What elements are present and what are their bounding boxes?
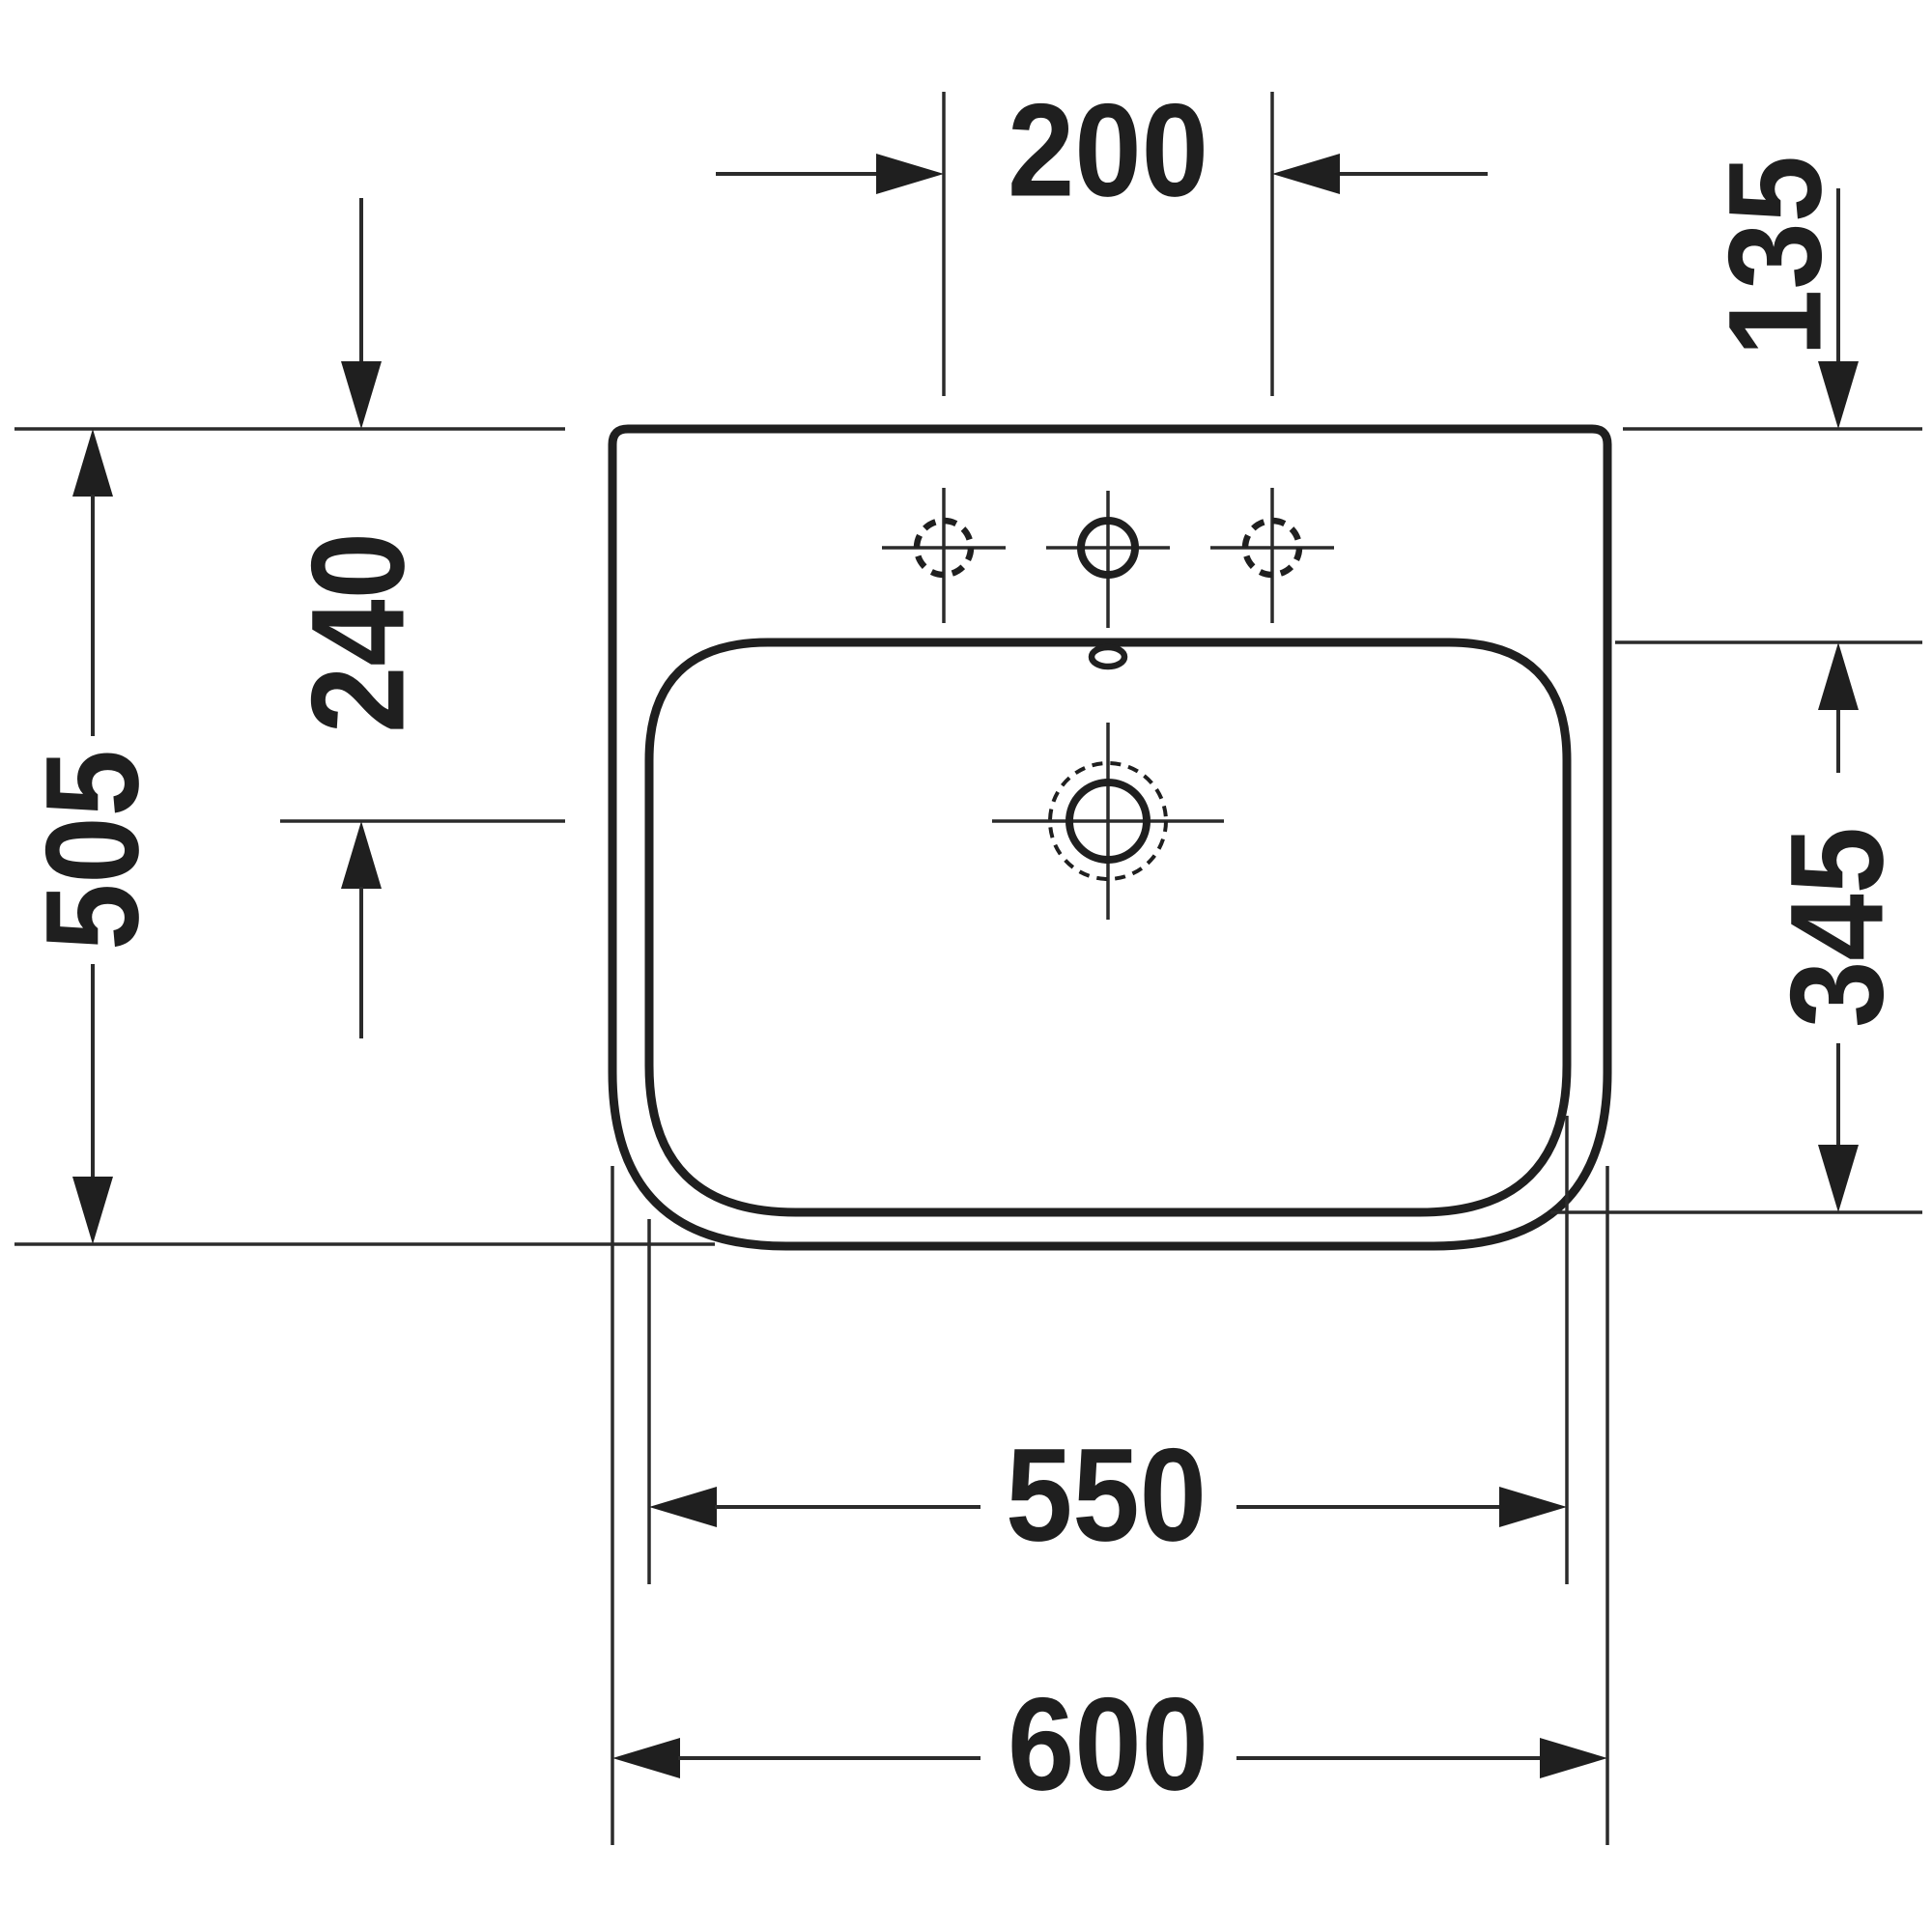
arrow-up-icon — [341, 821, 382, 889]
dimension-rear-to-basin: 135 — [1702, 156, 1860, 773]
dimension-rear-to-drain: 240 — [285, 198, 433, 1038]
arrow-up-icon — [1818, 642, 1859, 710]
dim-label-overall-width: 600 — [1008, 1671, 1208, 1819]
arrow-down-icon — [72, 1177, 113, 1244]
sink-outer-outline — [612, 429, 1607, 1246]
faucet-holes — [882, 488, 1334, 628]
dim-label-rear-to-basin: 135 — [1702, 156, 1850, 356]
arrow-right-icon — [876, 154, 944, 194]
dimension-basin-depth: 345 — [1764, 827, 1912, 1212]
arrow-left-icon — [649, 1487, 717, 1527]
dimension-faucet-spacing: 200 — [716, 77, 1488, 225]
dim-label-faucet-spacing: 200 — [1008, 77, 1208, 225]
dimension-overall-width: 600 — [612, 1671, 1607, 1819]
arrow-down-icon — [1818, 361, 1859, 429]
faucet-hole-center — [1046, 491, 1170, 628]
dim-label-basin-width: 550 — [1006, 1422, 1207, 1570]
washbasin-outline — [612, 429, 1607, 1246]
dim-label-basin-depth: 345 — [1764, 827, 1912, 1028]
washbasin-technical-drawing: 200 135 345 505 240 550 — [0, 0, 1932, 1932]
arrow-up-icon — [72, 429, 113, 497]
arrow-right-icon — [1540, 1738, 1607, 1778]
faucet-hole-left-dashed — [882, 488, 1006, 623]
arrow-left-icon — [612, 1738, 680, 1778]
faucet-hole-right-dashed — [1210, 488, 1334, 623]
dimension-overall-depth: 505 — [19, 429, 167, 1244]
overflow-hole — [1092, 647, 1124, 667]
arrow-left-icon — [1272, 154, 1340, 194]
dim-label-rear-to-drain: 240 — [285, 532, 433, 733]
extension-lines — [14, 92, 1922, 1845]
arrow-down-icon — [341, 361, 382, 429]
dimension-basin-width: 550 — [649, 1422, 1567, 1570]
arrow-down-icon — [1818, 1145, 1859, 1212]
drain-hole — [992, 723, 1224, 920]
dim-label-overall-depth: 505 — [19, 750, 167, 951]
arrow-right-icon — [1499, 1487, 1567, 1527]
